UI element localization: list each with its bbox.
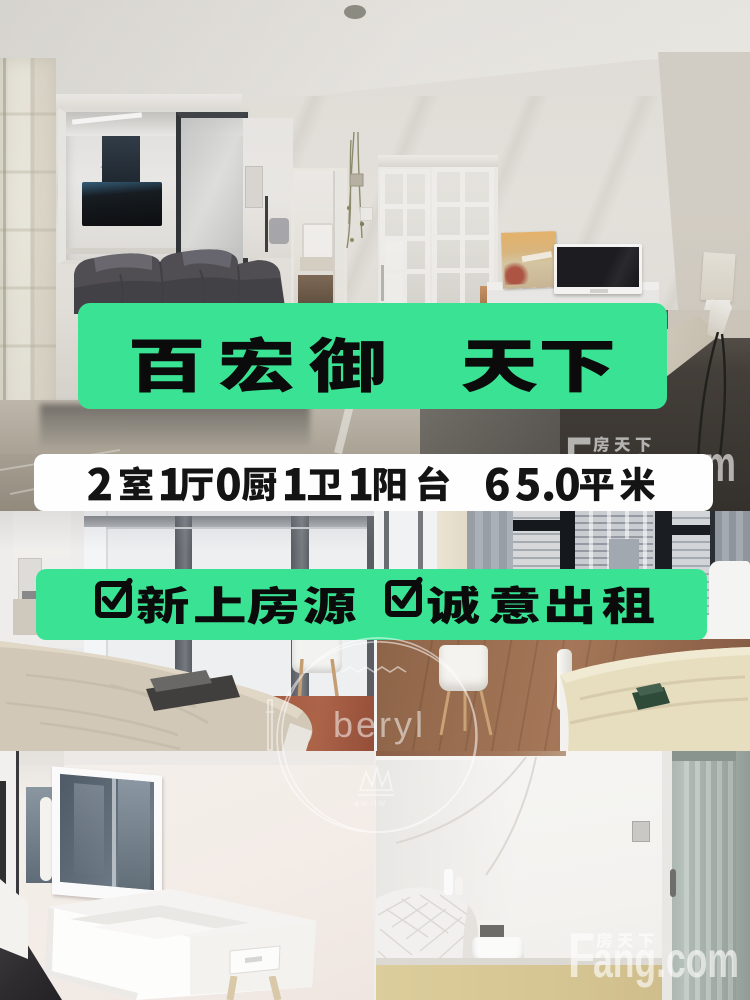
svg-text:aw-lw: aw-lw [354, 798, 387, 808]
svg-text:beryl: beryl [333, 704, 426, 745]
